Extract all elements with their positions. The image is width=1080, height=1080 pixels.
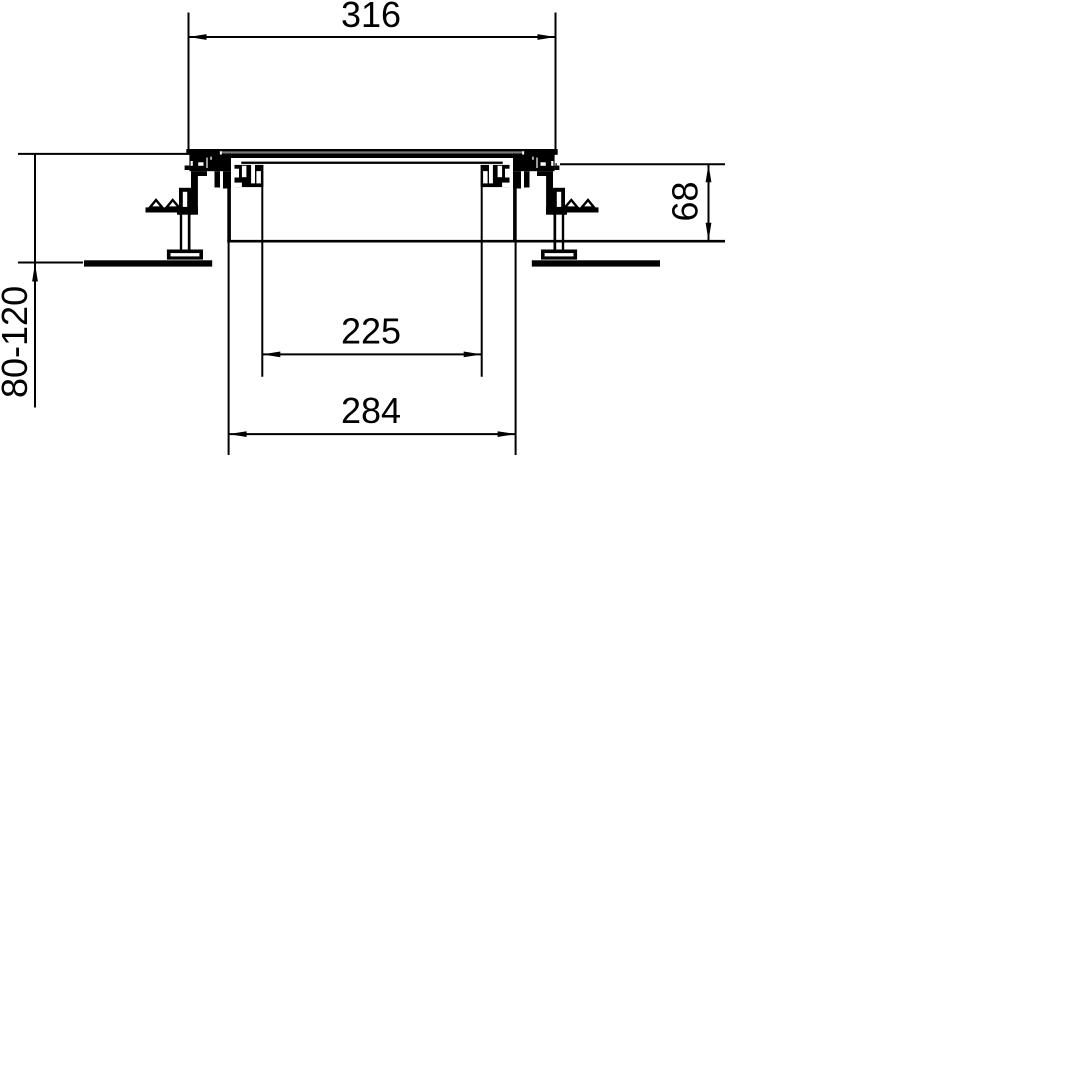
svg-text:225: 225 bbox=[341, 310, 401, 351]
svg-text:284: 284 bbox=[341, 390, 401, 431]
svg-text:80-120: 80-120 bbox=[0, 286, 35, 398]
svg-text:316: 316 bbox=[341, 0, 401, 35]
svg-text:68: 68 bbox=[665, 181, 706, 221]
